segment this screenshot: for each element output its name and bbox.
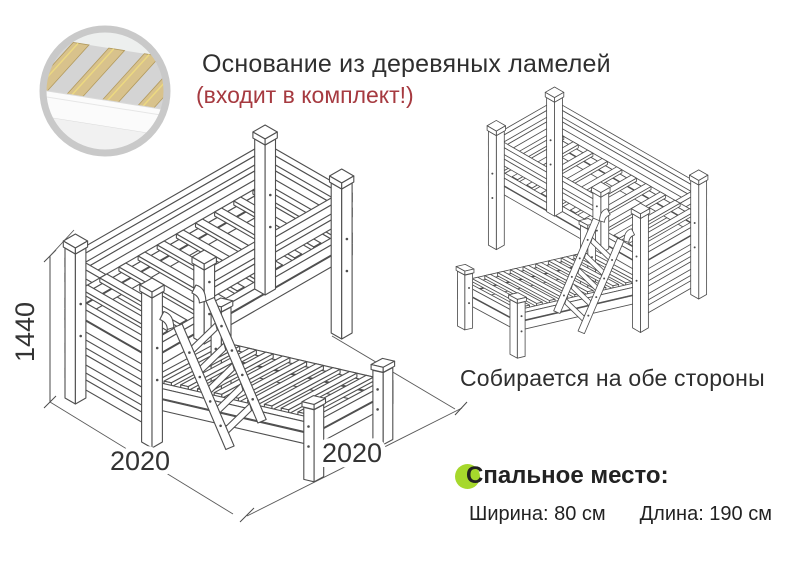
length-dimension-label-left: 2020 (110, 446, 170, 476)
both-sides-caption: Собирается на обе стороны (460, 365, 765, 392)
sleeping-width: Ширина: 80 см (469, 503, 606, 526)
bed-drawing-right (456, 87, 708, 358)
height-dimension-label: 1440 (10, 302, 40, 362)
sleeping-length: Длина: 190 см (640, 503, 772, 526)
sleeping-place-sizes: Ширина: 80 см Длина: 190 см (469, 503, 772, 526)
length-dimension-label-right: 2020 (322, 438, 382, 468)
bed-drawing-left (63, 125, 394, 482)
bed-infographic: Основание из деревяных ламелей (входит в… (0, 0, 800, 568)
sleeping-place-title: Спальное место: (466, 462, 669, 490)
technical-drawing: 1440 2020 2020 (0, 0, 800, 568)
